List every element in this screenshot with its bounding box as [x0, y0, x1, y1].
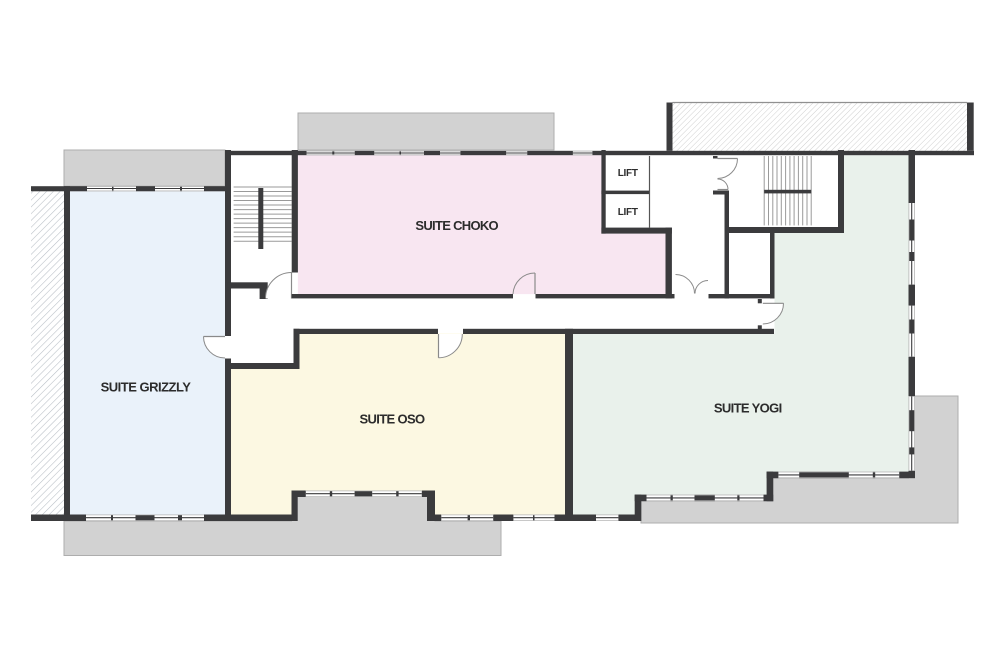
svg-text:SUITE GRIZZLY: SUITE GRIZZLY: [101, 380, 192, 395]
svg-text:LIFT: LIFT: [618, 207, 638, 218]
svg-text:SUITE CHOKO: SUITE CHOKO: [415, 218, 498, 233]
svg-text:SUITE OSO: SUITE OSO: [360, 412, 425, 427]
svg-text:SUITE YOGI: SUITE YOGI: [714, 401, 782, 416]
svg-text:LIFT: LIFT: [618, 168, 638, 179]
